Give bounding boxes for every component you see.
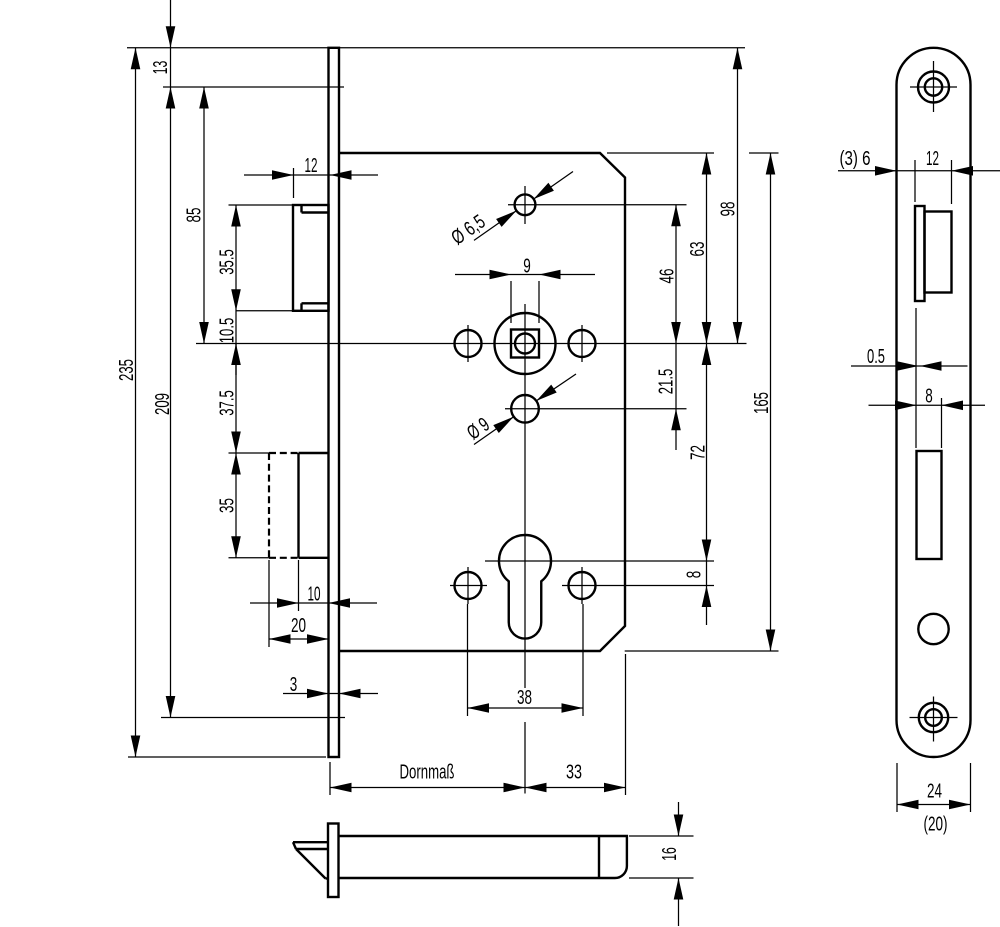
svg-text:8: 8 xyxy=(684,571,706,579)
svg-text:63: 63 xyxy=(687,242,709,257)
svg-text:46: 46 xyxy=(657,269,679,284)
svg-text:72: 72 xyxy=(688,445,710,460)
svg-text:0.5: 0.5 xyxy=(867,346,885,368)
svg-text:33: 33 xyxy=(566,762,582,784)
svg-text:8: 8 xyxy=(925,386,933,408)
svg-text:37.5: 37.5 xyxy=(217,390,239,416)
svg-text:10.5: 10.5 xyxy=(217,318,239,344)
svg-text:3: 3 xyxy=(290,674,298,696)
svg-text:209: 209 xyxy=(152,393,174,415)
svg-text:10: 10 xyxy=(308,584,321,606)
svg-text:38: 38 xyxy=(517,687,532,709)
svg-text:20: 20 xyxy=(291,615,306,637)
svg-text:24: 24 xyxy=(927,781,942,803)
svg-text:85: 85 xyxy=(184,208,206,223)
svg-text:35: 35 xyxy=(217,498,239,513)
svg-text:12: 12 xyxy=(305,155,318,177)
svg-text:(3) 6: (3) 6 xyxy=(840,148,871,170)
svg-text:21.5: 21.5 xyxy=(656,369,678,395)
svg-text:165: 165 xyxy=(751,392,773,414)
svg-text:16: 16 xyxy=(659,847,681,861)
svg-text:235: 235 xyxy=(116,359,138,381)
svg-text:35.5: 35.5 xyxy=(217,249,239,275)
svg-text:12: 12 xyxy=(926,148,939,170)
svg-text:98: 98 xyxy=(718,202,740,217)
svg-text:13: 13 xyxy=(150,61,172,75)
svg-text:(20): (20) xyxy=(924,814,948,836)
svg-text:Dornmaß: Dornmaß xyxy=(400,762,455,784)
svg-text:9: 9 xyxy=(523,256,531,278)
